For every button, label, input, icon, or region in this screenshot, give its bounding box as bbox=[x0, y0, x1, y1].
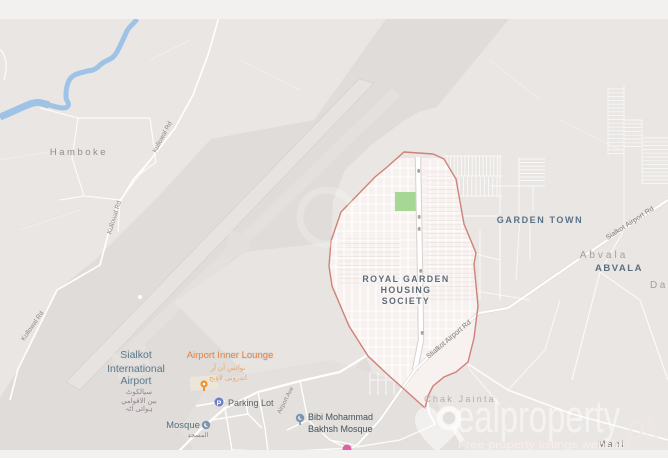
svg-text:Mosque: Mosque bbox=[166, 420, 200, 431]
svg-text:سيالكوٹ: سيالكوٹ bbox=[126, 388, 152, 396]
svg-text:Airport: Airport bbox=[121, 375, 152, 387]
svg-text:ROYAL GARDEN: ROYAL GARDEN bbox=[362, 274, 449, 284]
svg-text:Abvala: Abvala bbox=[580, 250, 629, 261]
svg-text:بين الاقوامي: بين الاقوامي bbox=[121, 397, 157, 405]
svg-text:ealproperty: ealproperty bbox=[456, 391, 620, 442]
svg-text:Parking Lot: Parking Lot bbox=[228, 398, 274, 408]
svg-text:Free property listings website: Free property listings website bbox=[458, 439, 625, 451]
svg-text:Airport Inner Lounge: Airport Inner Lounge bbox=[187, 350, 274, 361]
svg-text:SOCIETY: SOCIETY bbox=[382, 296, 430, 306]
svg-text:ABVALA: ABVALA bbox=[595, 263, 643, 274]
svg-text:ہوائی اٹہ: ہوائی اٹہ bbox=[125, 405, 152, 413]
svg-text:International: International bbox=[107, 363, 165, 375]
svg-text:Bibi Mohammad: Bibi Mohammad bbox=[308, 412, 373, 422]
svg-text:اندرونی لاؤنج: اندرونی لاؤنج bbox=[209, 374, 247, 382]
svg-text:P: P bbox=[217, 400, 222, 407]
svg-text:HOUSING: HOUSING bbox=[381, 285, 432, 295]
svg-text:GARDEN TOWN: GARDEN TOWN bbox=[497, 215, 583, 225]
svg-text:.pk: .pk bbox=[619, 406, 662, 447]
svg-text:Hamboke: Hamboke bbox=[50, 147, 108, 158]
svg-text:Sialkot: Sialkot bbox=[120, 349, 152, 361]
svg-text:Bakhsh Mosque: Bakhsh Mosque bbox=[308, 424, 373, 434]
svg-text:المسجد: المسجد bbox=[188, 431, 209, 439]
svg-text:Dad: Dad bbox=[650, 280, 668, 291]
